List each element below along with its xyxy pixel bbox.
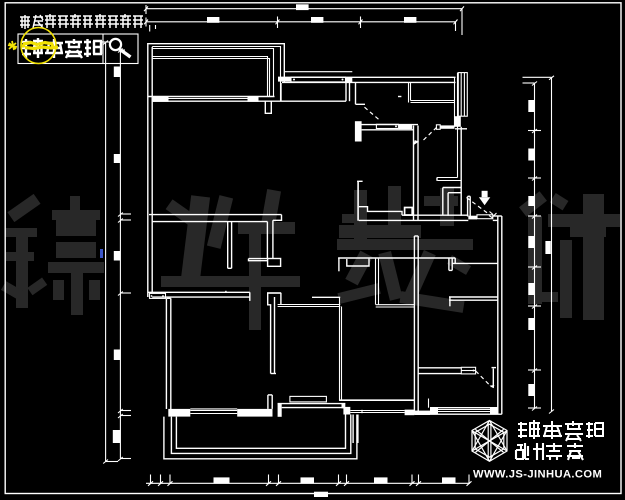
svg-text:WWW.JS-JINHUA.COM: WWW.JS-JINHUA.COM [473, 469, 602, 481]
